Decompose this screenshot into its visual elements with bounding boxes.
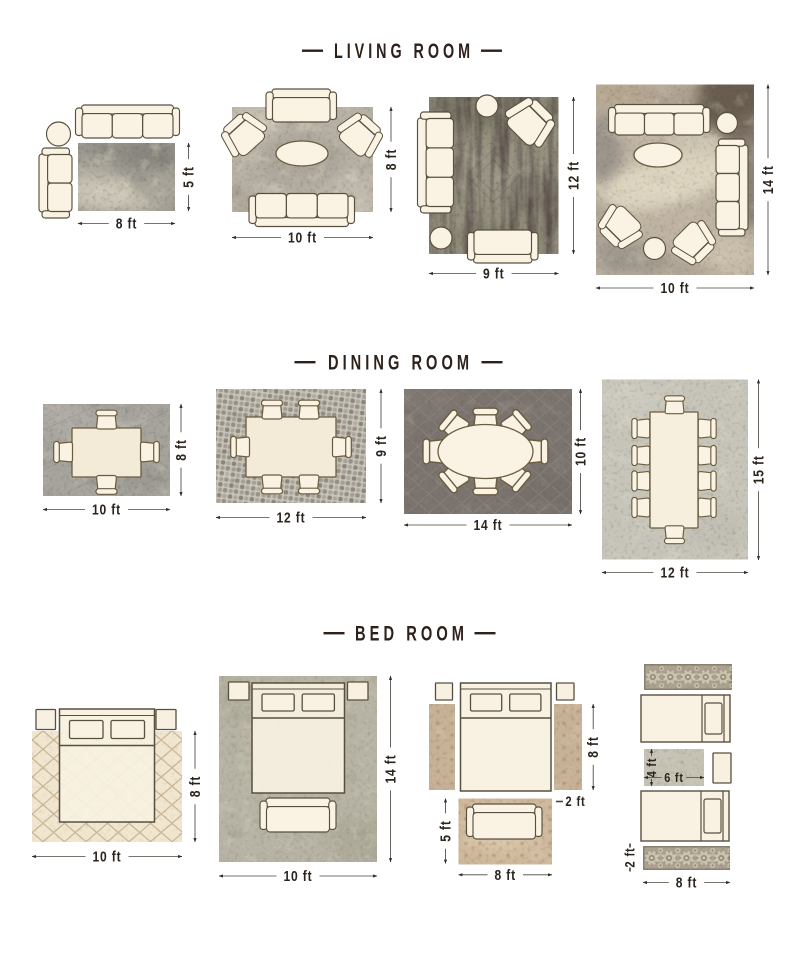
svg-text:10 ft: 10 ft [284, 868, 313, 884]
svg-text:10 ft: 10 ft [92, 502, 121, 518]
svg-text:8 ft: 8 ft [187, 776, 203, 798]
svg-text:5 ft: 5 ft [438, 820, 454, 842]
svg-text:D I N I N G R O O M: D I N I N G R O O M [328, 352, 469, 375]
svg-text:8 ft: 8 ft [116, 216, 138, 232]
svg-text:8 ft: 8 ft [494, 867, 516, 883]
svg-text:8 ft: 8 ft [383, 149, 399, 171]
svg-text:6 ft: 6 ft [664, 770, 684, 785]
svg-text:12 ft: 12 ft [566, 161, 582, 190]
svg-text:10 ft: 10 ft [661, 280, 690, 296]
svg-text:10 ft: 10 ft [93, 849, 122, 865]
svg-text:12 ft: 12 ft [661, 565, 690, 581]
svg-text:5 ft: 5 ft [181, 166, 197, 188]
svg-text:B E D R O O M: B E D R O O M [355, 623, 464, 646]
svg-text:10 ft: 10 ft [288, 230, 317, 246]
svg-text:14 ft: 14 ft [383, 755, 399, 784]
svg-text:8 ft: 8 ft [173, 439, 189, 461]
svg-text:L I V I N G R O O M: L I V I N G R O O M [334, 40, 470, 63]
svg-text:8 ft: 8 ft [676, 875, 698, 891]
svg-text:12 ft: 12 ft [277, 510, 306, 526]
svg-text:2 ft: 2 ft [623, 847, 638, 867]
svg-text:10 ft: 10 ft [573, 437, 589, 466]
svg-text:4 ft: 4 ft [644, 758, 659, 778]
svg-text:9 ft: 9 ft [373, 435, 389, 457]
svg-text:2 ft: 2 ft [565, 794, 585, 809]
svg-text:8 ft: 8 ft [585, 736, 601, 758]
svg-text:14 ft: 14 ft [474, 517, 503, 533]
svg-text:15 ft: 15 ft [751, 455, 767, 484]
svg-text:14 ft: 14 ft [760, 165, 776, 194]
svg-text:9 ft: 9 ft [483, 266, 505, 282]
